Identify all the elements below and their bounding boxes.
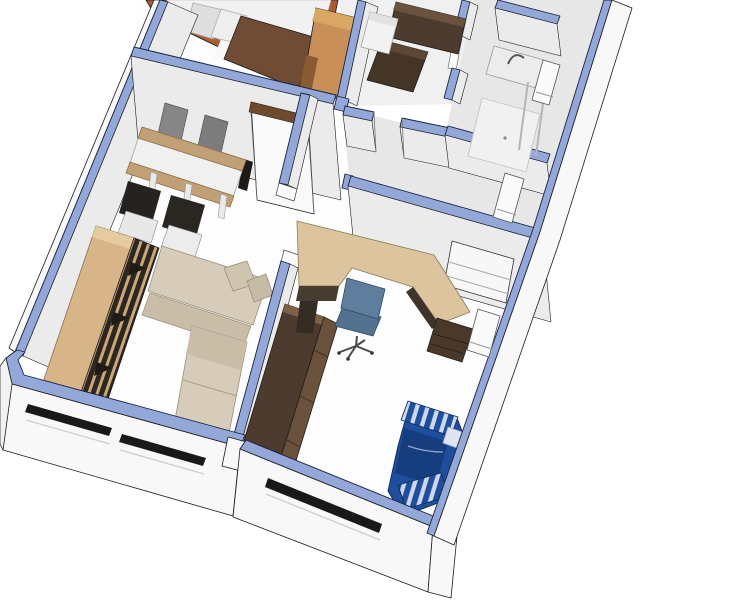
chair-caster-1 — [337, 351, 341, 355]
floorplan-3d-view[interactable] — [0, 0, 740, 600]
desk-front-edge — [296, 286, 339, 301]
kitchen-south-wall-face-a — [343, 115, 376, 152]
chair-caster-2 — [370, 351, 374, 355]
floorplan-viewport[interactable] — [0, 0, 740, 600]
chair-caster-3 — [346, 357, 350, 361]
shower-drain — [503, 136, 506, 139]
